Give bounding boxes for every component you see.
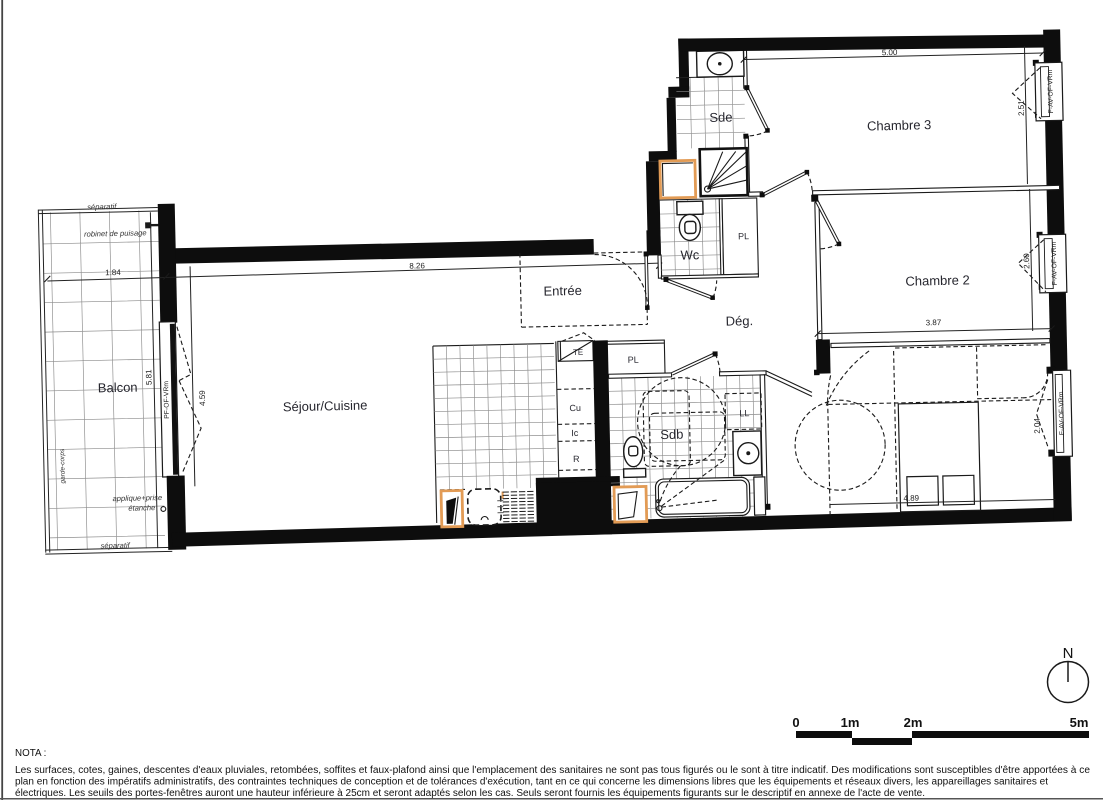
svg-text:4.89: 4.89 [903, 493, 919, 502]
svg-text:séparatif: séparatif [87, 202, 117, 212]
svg-text:séparatif: séparatif [100, 541, 130, 551]
svg-text:PL: PL [628, 355, 639, 365]
svg-text:5.81: 5.81 [144, 369, 153, 385]
svg-text:Séjour/Cuisine: Séjour/Cuisine [283, 398, 368, 415]
svg-text:Dég.: Dég. [725, 313, 753, 329]
svg-text:électriques. Les seuils des po: électriques. Les seuils des portes-fenêt… [15, 788, 925, 799]
svg-text:R: R [573, 454, 580, 464]
svg-text:Sdb: Sdb [660, 427, 683, 443]
svg-text:TE: TE [573, 348, 583, 357]
svg-text:2m: 2m [904, 715, 923, 730]
svg-text:4.59: 4.59 [198, 390, 207, 406]
svg-text:Chambre 2: Chambre 2 [905, 272, 970, 288]
svg-text:LL: LL [739, 408, 749, 418]
svg-text:étanche: étanche [128, 503, 155, 513]
svg-text:robinet de puisage: robinet de puisage [84, 228, 147, 238]
svg-text:F-AV-OF-VRm: F-AV-OF-VRm [1058, 391, 1066, 435]
svg-text:Entrée: Entrée [543, 283, 582, 299]
svg-text:2.04: 2.04 [1033, 417, 1042, 433]
svg-text:applique+prise: applique+prise [112, 493, 162, 503]
svg-text:5.00: 5.00 [882, 48, 898, 57]
svg-text:F-AV-OF-VRm: F-AV-OF-VRm [1047, 69, 1055, 113]
svg-text:2.51: 2.51 [1017, 100, 1026, 116]
svg-text:Cu: Cu [569, 403, 581, 413]
svg-text:Ic: Ic [571, 428, 579, 438]
svg-text:0: 0 [792, 715, 799, 730]
svg-text:N: N [1063, 645, 1074, 662]
svg-text:Chambre 3: Chambre 3 [867, 117, 932, 133]
svg-text:5m: 5m [1070, 715, 1089, 730]
svg-text:Balcon: Balcon [98, 380, 138, 396]
svg-text:1.84: 1.84 [105, 268, 121, 277]
svg-text:garde-corps: garde-corps [59, 448, 67, 484]
svg-text:Les surfaces, cotes, gaines, d: Les surfaces, cotes, gaines, descentes d… [15, 765, 1091, 776]
svg-text:PF-OF-VRm: PF-OF-VRm [163, 381, 171, 419]
svg-text:2.60: 2.60 [1022, 253, 1031, 269]
svg-text:1m: 1m [841, 715, 860, 730]
svg-text:3.87: 3.87 [926, 318, 942, 327]
svg-text:F-AV-OF-VRm: F-AV-OF-VRm [1051, 241, 1059, 285]
svg-text:Wc: Wc [680, 247, 700, 262]
svg-text:8.26: 8.26 [409, 261, 425, 270]
svg-text:NOTA :: NOTA : [15, 748, 46, 759]
svg-text:plan en fonction des impératif: plan en fonction des impératifs administ… [15, 777, 1048, 788]
svg-text:PL: PL [738, 231, 749, 241]
svg-text:Sde: Sde [709, 109, 732, 125]
